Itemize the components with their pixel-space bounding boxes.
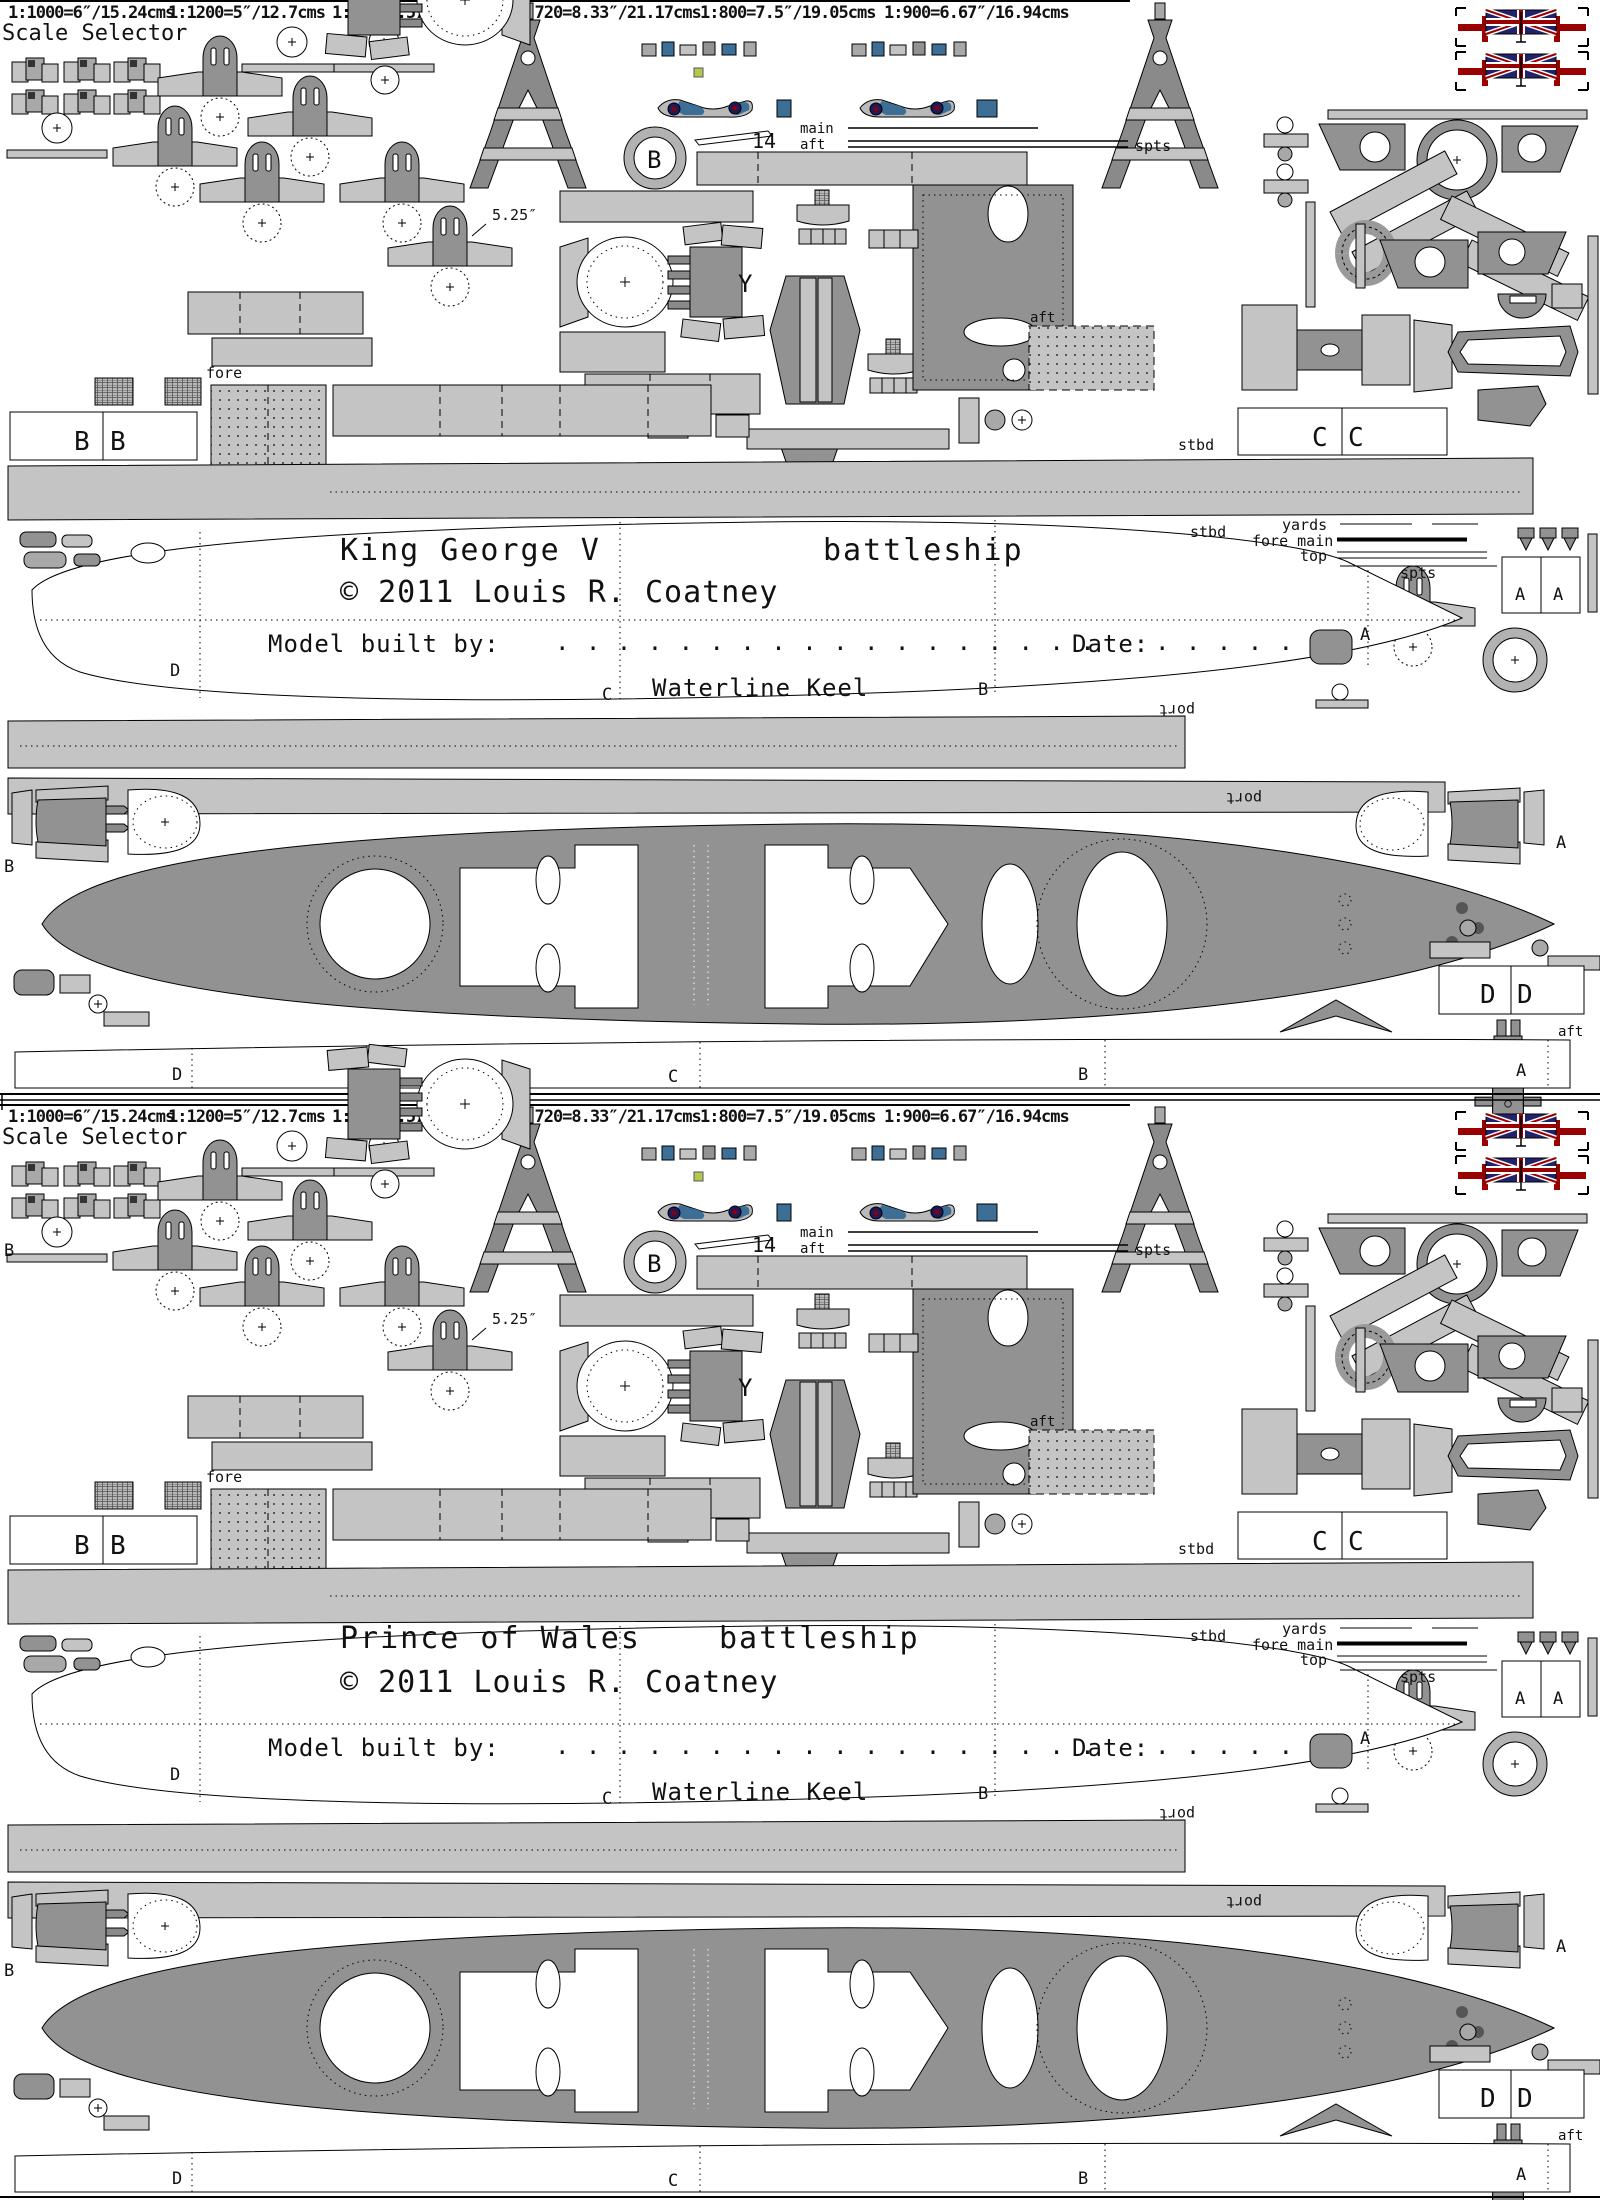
ship-name-title: King George V <box>340 533 601 568</box>
copyright-line: © 2011 Louis R. Coatney <box>340 1665 778 1700</box>
model-sheet-svg: 1:1000=6″/15.24cms 1:1200=5″/12.7cms 1:7… <box>0 0 1600 2200</box>
edge-letter: B <box>4 1241 14 1261</box>
paper-model-sheet: 1:1000=6″/15.24cms 1:1200=5″/12.7cms 1:7… <box>0 0 1600 2200</box>
ship-name-title: Prince of Wales <box>340 1621 641 1656</box>
ship-type-title: battleship <box>823 533 1024 568</box>
ship-type-title: battleship <box>719 1621 920 1656</box>
panel-king-george-v: King George V battleship © 2011 Louis R.… <box>0 0 1600 1128</box>
copyright-line: © 2011 Louis R. Coatney <box>340 575 778 610</box>
panel-prince-of-wales: Prince of Wales battleship © 2011 Louis … <box>0 1044 1600 2200</box>
